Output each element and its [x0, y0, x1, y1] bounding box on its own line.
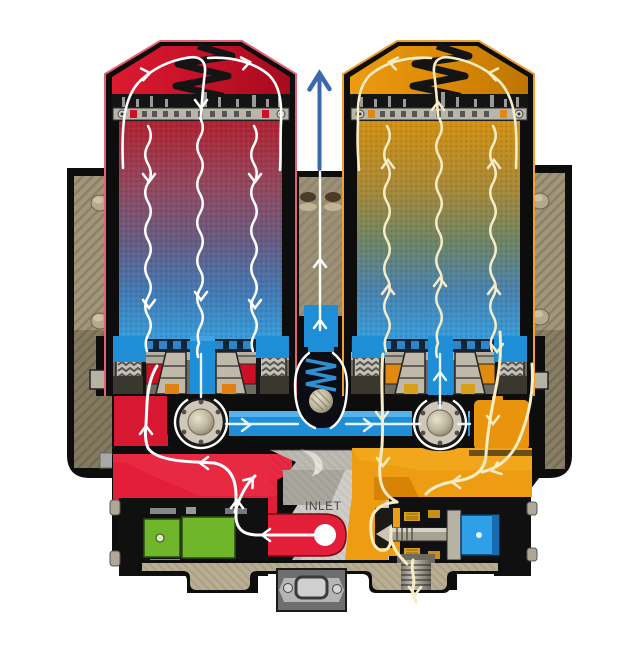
svg-text:INLET: INLET [305, 499, 342, 513]
